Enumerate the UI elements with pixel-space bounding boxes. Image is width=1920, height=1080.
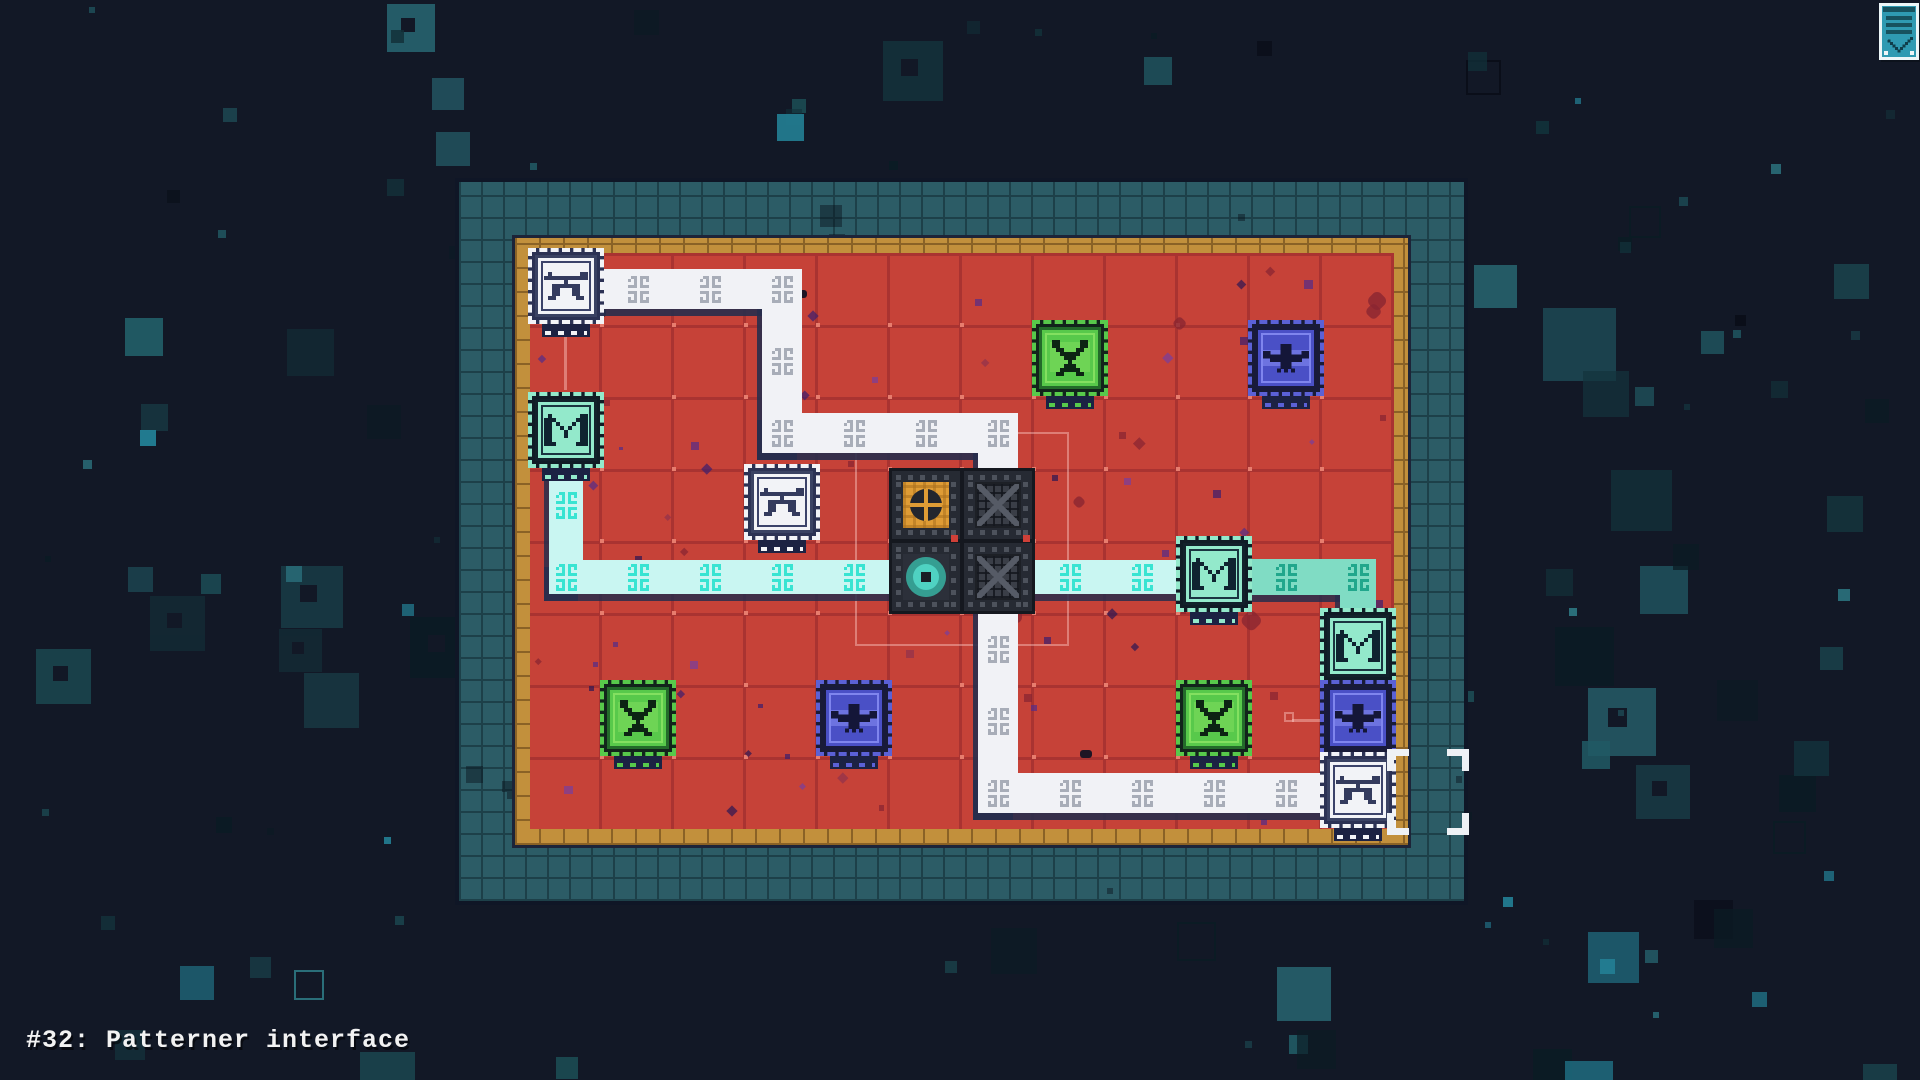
grid-dot [600,611,604,615]
tile-rivets [896,547,901,607]
chip-stand-dashes [761,547,803,551]
machine-tile-maze-b[interactable] [961,540,1035,614]
grid-dot [816,611,820,615]
debris-speck [613,642,618,647]
grid-dot [744,611,748,615]
chip-body [535,255,597,317]
debris-speck [975,299,982,306]
grid-dot [888,395,892,399]
frame-speck [466,766,483,783]
tile-core [903,482,949,528]
trace-ornament [772,564,775,567]
grid-dot [600,539,604,543]
wyrm-glyph-icon [1048,340,1052,344]
trace-ornament [772,348,775,351]
glyph-backplate [618,702,658,732]
chip-stand-dashes [1193,763,1235,767]
tile-rivets [968,475,973,535]
tile-rivets [968,530,1028,535]
menu-icon-line [1886,16,1912,20]
tile-rivets [968,547,973,607]
debris-speck [1213,490,1221,498]
chip-stand [1190,756,1238,769]
bracket-arm [1387,813,1394,835]
chip-stand-dashes [545,475,587,479]
grid-dot [672,323,676,327]
tile-rivets [1023,475,1028,535]
trace-ornament [844,564,847,567]
debris-speck [758,704,763,709]
debris-speck [593,662,598,667]
frame-speck [1238,214,1245,221]
anchor-glyph-icon [544,272,548,276]
grid-dot [1176,467,1180,471]
grid-dot [960,395,964,399]
grid-dot [1104,539,1108,543]
trace-ornament [1132,780,1135,783]
frame-speck [820,205,842,227]
bird-glyph-icon [831,704,835,708]
em-glyph-icon [544,414,548,418]
chip-stand [542,468,590,481]
machine-tile-orange-core[interactable] [889,468,963,542]
trace-ornament [1132,564,1135,567]
node-creature-bottom-left[interactable] [607,687,669,749]
bracket-arm [1462,749,1469,771]
trace-ornament [988,780,991,783]
grid-dot [960,755,964,759]
trace-ornament [1276,780,1279,783]
core-hole [921,572,931,582]
debris-speck [691,442,699,450]
trace-ornament [1276,564,1279,567]
trace-ornament [988,636,991,639]
bird-glyph-icon [1263,344,1267,348]
trace-ornament [1060,780,1063,783]
anchor-glyph-icon [760,488,764,492]
bracket-arm [1387,749,1394,771]
tile-rivets [896,530,956,535]
grid-dot [672,539,676,543]
chip-body [607,687,669,749]
trace-ornament [556,492,559,495]
grid-dot [744,683,748,687]
junction-dot [951,535,958,542]
chip-stand [614,756,662,769]
core-circle-dark [910,489,942,521]
debris-speck [1024,694,1032,702]
grid-dot [1248,467,1252,471]
chip-body [1183,687,1245,749]
chip-stand [758,540,806,553]
menu-panel-icon[interactable] [1879,3,1919,60]
glyph-backplate [831,710,877,726]
trace-ornament [628,564,631,567]
glyph-backplate [1335,710,1381,726]
chip-stand [1334,828,1382,841]
tile-rivets [968,602,1028,607]
node-anchor-bottom-right[interactable] [1327,759,1389,821]
node-creature-top[interactable] [1039,327,1101,389]
node-bird-bottom-mid[interactable] [823,687,885,749]
chip-stand-dashes [833,763,875,767]
bird-glyph-icon [1335,704,1339,708]
chip-body [823,687,885,749]
chip-body [751,471,813,533]
debris-speck [1119,432,1126,439]
menu-icon-line [1886,23,1912,27]
grid-dot [672,611,676,615]
chip-body [1039,327,1101,389]
node-bird-top-right[interactable] [1255,327,1317,389]
grid-dot [1104,683,1108,687]
menu-icon-dot [1884,51,1888,55]
core-cross [910,503,942,507]
grid-dot [888,323,892,327]
trace-ornament [1060,564,1063,567]
junction-dot [1023,535,1030,542]
debris-speck [872,377,878,383]
debris-speck [1240,337,1248,345]
trace-ornament [988,420,991,423]
debris-speck [906,650,914,658]
chip-stand-dashes [1193,619,1235,623]
chip-body [535,399,597,461]
tile-core [975,482,1021,528]
debris-speck [1162,550,1169,557]
debris-speck [785,754,790,759]
node-anchor-top-left[interactable] [535,255,597,317]
frame-speck [1107,888,1113,894]
game-screen: #32: Patterner interface [0,0,1920,1080]
tile-rivets [896,475,901,535]
chip-stand [830,756,878,769]
trace-ornament [556,564,559,567]
debris-speck [589,686,594,691]
debris-speck [879,805,885,811]
tile-rivets [896,547,956,552]
trace-ornament [916,420,919,423]
grid-dot [960,683,964,687]
tile-core [975,554,1021,600]
grid-dot [672,467,676,471]
menu-icon-inner [1882,6,1916,57]
debris-speck [1380,415,1387,422]
node-bird-right-edge[interactable] [1327,687,1389,749]
level-title: #32: Patterner interface [26,1026,410,1055]
chip-stand [1262,396,1310,409]
debris-speck [619,447,623,451]
grid-dot [816,395,820,399]
node-creature-bottom-right[interactable] [1183,687,1245,749]
node-chip-mid-right[interactable] [1183,543,1245,605]
trace-ornament [772,276,775,279]
em-glyph-icon [1192,558,1196,562]
tile-rivets [968,547,1028,552]
trace-ornament [628,276,631,279]
glyph-backplate [1263,350,1309,366]
core-circle-teal [906,557,946,597]
node-chip-right-edge[interactable] [1327,615,1389,677]
chip-stand [1046,396,1094,409]
trace-ornament [700,276,703,279]
debris-speck [1124,478,1131,485]
menu-icon-topbar [1883,7,1915,12]
tile-rivets [896,475,956,480]
grid-dot [960,323,964,327]
menu-icon-line [1886,30,1912,34]
glyph-backplate [1050,342,1090,372]
debris-speck [1376,600,1383,607]
tile-rivets [951,475,956,535]
chip-stand [542,324,590,337]
bracket-arm [1462,813,1469,835]
grid-dot [744,395,748,399]
tile-core [903,554,949,600]
debris-speck [604,400,610,406]
puzzle-board [0,0,1920,1080]
trace-ornament [772,420,775,423]
chip-body [1327,687,1389,749]
node-anchor-mid[interactable] [751,471,813,533]
debris-speck [1304,280,1313,289]
grid-dot [744,323,748,327]
tile-rivets [1023,547,1028,607]
selection-brackets [1387,749,1469,835]
grid-dot [1320,467,1324,471]
grid-dot [1104,467,1108,471]
chip-body [1183,543,1245,605]
trace-ornament [988,708,991,711]
trace-ornament [700,564,703,567]
chip-stand-dashes [1265,403,1307,407]
machine-tile-teal-core[interactable] [889,540,963,614]
chip-stand-dashes [1049,403,1091,407]
faint-link-square [1284,712,1294,722]
wyrm-glyph-icon [616,700,620,704]
chip-stand-dashes [1337,835,1379,839]
grid-dot [816,323,820,327]
em-glyph-icon [1336,630,1340,634]
trace-white [978,773,1378,813]
grid-dot [1032,755,1036,759]
chip-stand [1190,612,1238,625]
tile-rivets [968,475,1028,480]
grid-dot [1176,395,1180,399]
machine-tile-maze-a[interactable] [961,468,1035,542]
tile-rivets [951,547,956,607]
chip-stand-dashes [617,763,659,767]
grid-dot [1104,755,1108,759]
chip-body [1327,759,1389,821]
chevron-down-icon [1885,37,1888,40]
debris-speck [690,661,698,669]
glyph-backplate [1194,702,1234,732]
trace-ornament [1204,780,1207,783]
chip-body [1255,327,1317,389]
debris-speck [1270,692,1278,700]
tile-rivets [896,602,956,607]
node-chip-left[interactable] [535,399,597,461]
debris-speck [564,786,572,794]
grid-dot [1320,539,1324,543]
grid-dot [672,395,676,399]
wyrm-glyph-icon [1192,700,1196,704]
trace-ornament [1348,564,1351,567]
bug-sprite [1080,750,1092,758]
debris-speck [848,461,854,467]
anchor-glyph-icon [1336,776,1340,780]
menu-icon-dot [1910,51,1914,55]
grid-dot [1032,683,1036,687]
trace-ornament [844,420,847,423]
chip-stand-dashes [545,331,587,335]
debris-speck [1031,705,1037,711]
chip-body [1327,615,1389,677]
